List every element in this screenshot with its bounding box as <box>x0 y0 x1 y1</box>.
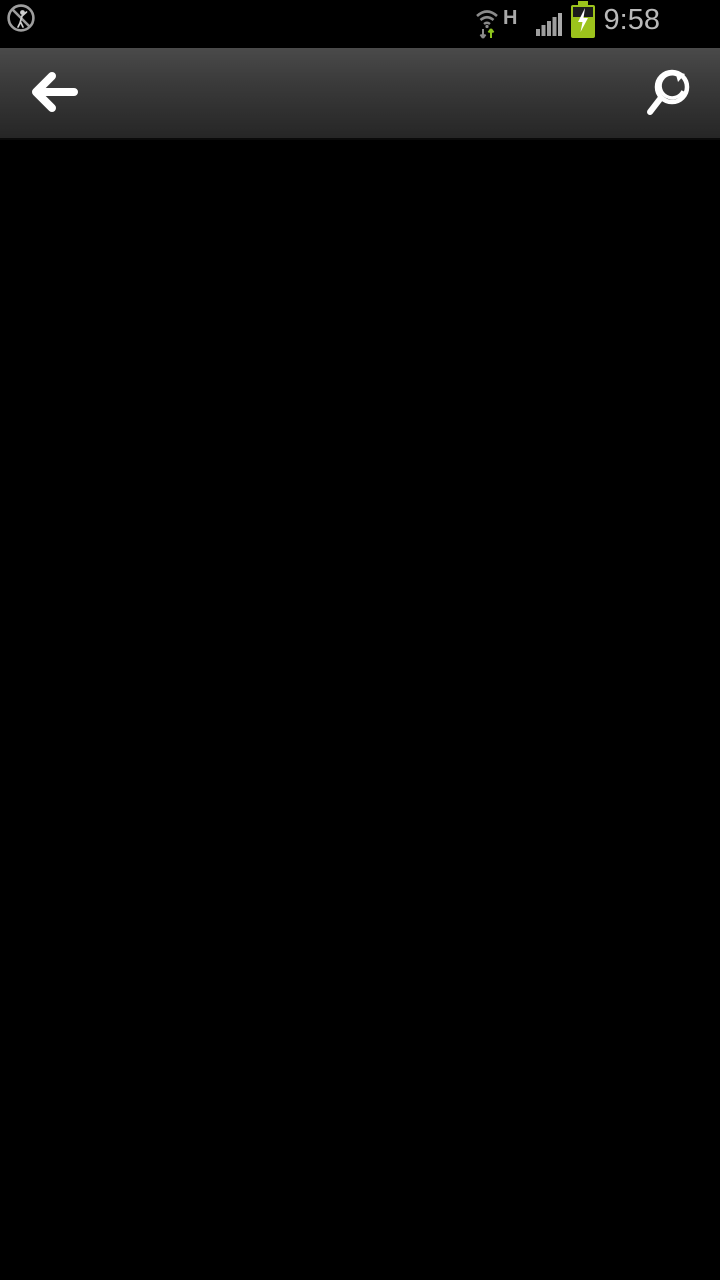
network-type-label: H <box>503 7 517 30</box>
signal-strength-icon <box>536 9 566 37</box>
back-button[interactable] <box>6 48 96 138</box>
screen: { "status_bar": { "time": "9:58", "netwo… <box>0 0 720 1280</box>
cad-viewport[interactable] <box>0 140 720 1280</box>
clock: 9:58 <box>594 4 660 37</box>
toolbar <box>0 48 720 140</box>
blocking-mode-icon <box>6 3 36 33</box>
magnifier-arrow-icon <box>639 62 699 122</box>
battery-charging-icon <box>570 1 596 39</box>
zoom-extents-button[interactable] <box>624 48 714 138</box>
status-bar: H 9:58 <box>0 0 720 48</box>
back-arrow-icon <box>22 69 80 115</box>
wifi-icon <box>474 7 502 41</box>
